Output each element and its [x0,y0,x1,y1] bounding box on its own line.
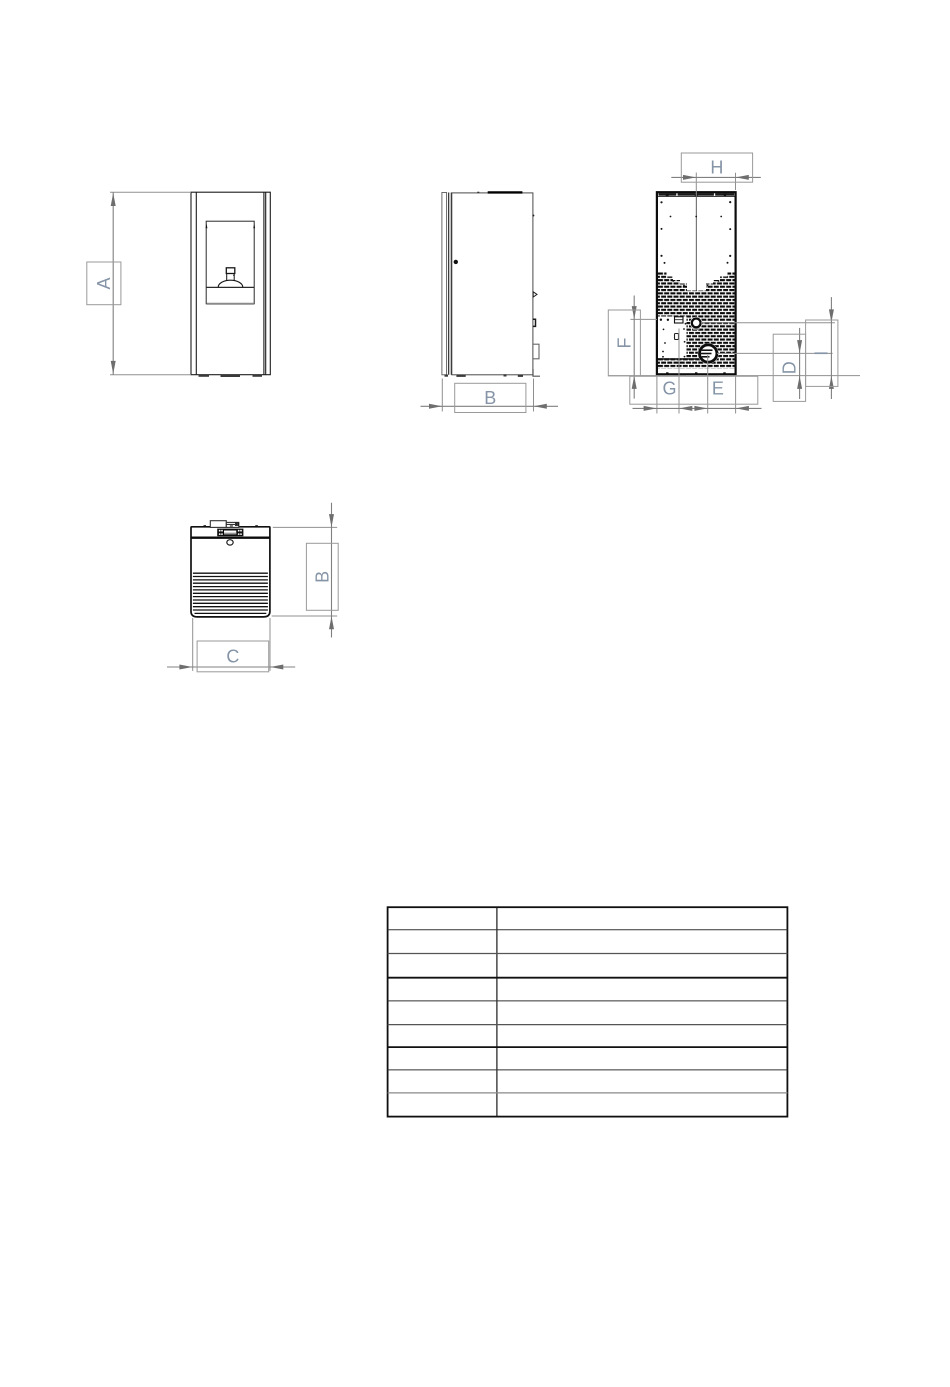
svg-text:G: G [662,379,676,399]
svg-text:F: F [614,338,634,349]
svg-text:C: C [226,646,239,666]
svg-text:I: I [812,351,832,356]
svg-text:E: E [712,379,724,399]
svg-text:D: D [779,361,799,374]
svg-text:B: B [484,388,496,408]
svg-text:H: H [710,158,723,178]
svg-text:B: B [312,571,332,583]
svg-text:A: A [94,277,114,289]
